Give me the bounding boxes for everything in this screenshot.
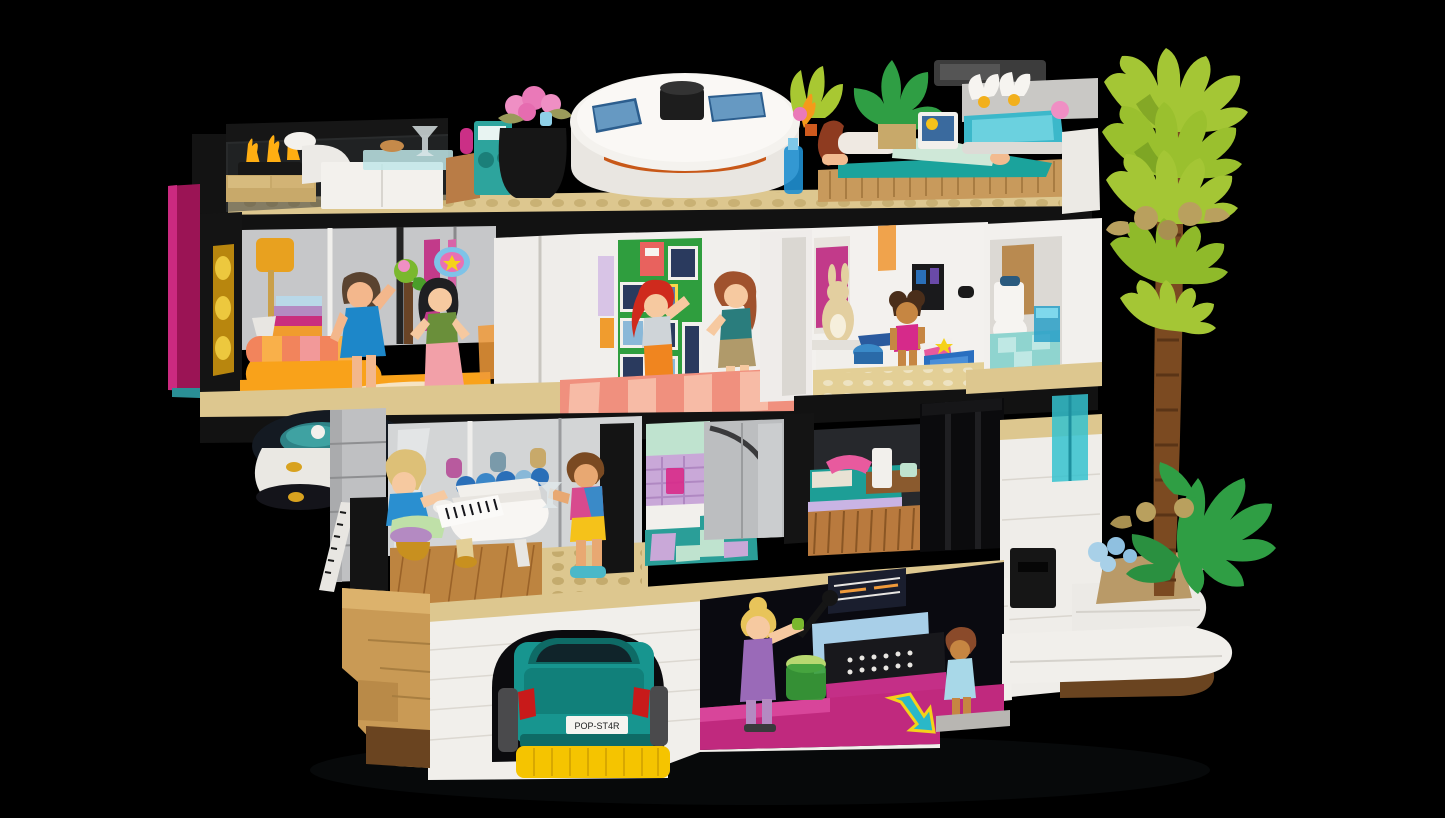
svg-text:POP-ST4R: POP-ST4R [574, 721, 620, 731]
